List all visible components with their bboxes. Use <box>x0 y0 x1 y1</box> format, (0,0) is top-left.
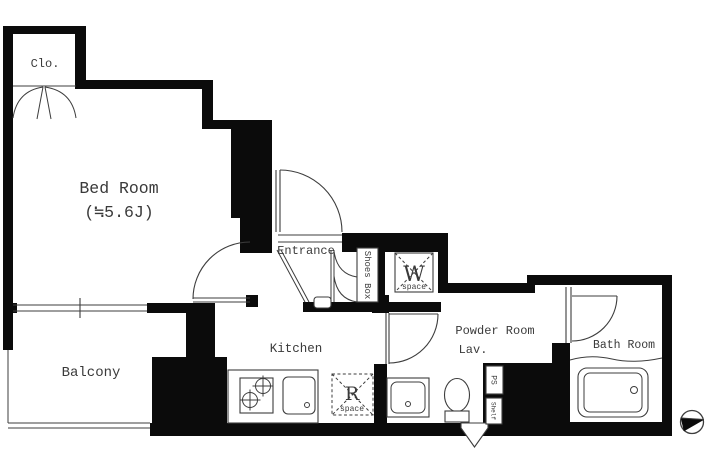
bedroom-size: (≒5.6J) <box>84 203 153 222</box>
pillar-entrance-upper <box>231 129 272 218</box>
entrance-door-leaf <box>276 170 280 232</box>
refrigerator-space-letter: R <box>345 383 360 405</box>
entrance-label: Entrance <box>277 244 335 258</box>
washbasin <box>387 378 429 417</box>
refrigerator-space-label: space <box>340 405 364 414</box>
pillar-entrance-lower <box>240 217 272 253</box>
floor-plan: Shoes Box W space R space <box>0 0 710 472</box>
stove-burner <box>240 390 261 411</box>
wall-closet-right <box>75 26 86 86</box>
shoes-box: Shoes Box <box>331 248 378 302</box>
closet-door-fold <box>37 87 51 119</box>
bath-door-swing <box>572 296 617 341</box>
bathtub <box>570 357 662 417</box>
entrance-threshold <box>278 235 342 242</box>
wall-bath-right <box>662 285 672 432</box>
wall-closet-top <box>3 26 85 34</box>
bathtub-drain <box>631 387 638 394</box>
shoes-box-label: Shoes Box <box>362 251 372 300</box>
wall-bedroom-top <box>75 80 213 89</box>
bath-floor-wave <box>570 357 662 362</box>
balcony-window <box>13 298 147 318</box>
wall-shoesbox-right-strip <box>378 248 385 302</box>
bedroom-door-leaf <box>193 298 250 302</box>
powder-room-door <box>386 313 438 364</box>
kitchen-label: Kitchen <box>270 342 323 356</box>
compass-icon <box>681 411 705 434</box>
entrance-door-swing <box>280 170 342 232</box>
powder-room-label: Powder Room <box>455 324 534 338</box>
refrigerator-space: R space <box>332 374 373 415</box>
washer-space: W space <box>395 253 433 292</box>
toilet <box>445 379 489 448</box>
wall-bath-top <box>527 275 672 285</box>
balcony-label: Balcony <box>62 365 121 381</box>
shelf-label: Shelf <box>490 402 497 420</box>
bathtub-outer <box>578 368 648 417</box>
wall-step-east <box>202 120 272 129</box>
wall-washer-right <box>438 240 448 293</box>
wall-bath-left-lower <box>552 343 570 423</box>
pipe-space-label: PS <box>489 375 498 385</box>
powder-door-swing <box>389 314 438 363</box>
bedroom-label: Bed Room <box>79 179 158 198</box>
railing-lines <box>8 350 150 428</box>
closet-label: Clo. <box>31 57 60 71</box>
lavatory-label: Lav. <box>459 343 488 357</box>
kitchen-sink <box>283 377 315 414</box>
wall-bedroom-door-hinge-nub <box>246 295 258 307</box>
bath-room-label: Bath Room <box>593 339 655 352</box>
kitchen-counter <box>228 370 318 423</box>
floor-plan-canvas: Shoes Box W space R space <box>0 0 710 472</box>
wall-left-outer <box>3 26 13 350</box>
toilet-bowl <box>445 379 470 412</box>
stove-burner <box>253 376 274 397</box>
wall-powder-top <box>448 283 535 293</box>
wall-powder-left-lower <box>374 364 387 424</box>
bathtub-inner <box>584 373 642 412</box>
pillar-balcony-right <box>152 304 227 428</box>
entrance-floor-step <box>314 297 331 308</box>
room-labels: Clo. Bed Room (≒5.6J) Entrance Kitchen P… <box>31 57 656 381</box>
toilet-base <box>445 411 469 422</box>
entrance-door <box>276 170 342 308</box>
closet-folding-door <box>13 86 76 119</box>
powder-doorway-jamb <box>386 313 389 364</box>
bath-doorway-jamb <box>566 287 571 343</box>
shoes-box-door-arcs <box>334 251 357 302</box>
balcony-railing <box>8 350 150 428</box>
bath-room-door <box>566 287 617 343</box>
washer-space-label: space <box>402 283 426 292</box>
